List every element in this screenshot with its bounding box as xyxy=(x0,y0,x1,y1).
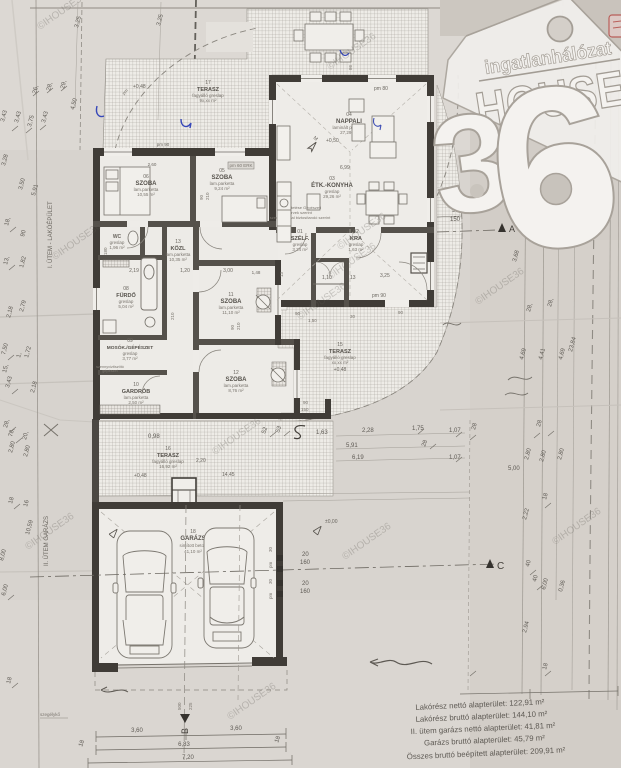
svg-text:90: 90 xyxy=(199,194,204,200)
svg-text:30: 30 xyxy=(268,546,273,552)
svg-text:150: 150 xyxy=(301,407,309,412)
svg-text:30: 30 xyxy=(350,314,356,319)
svg-text:GARÁZS: GARÁZS xyxy=(180,535,205,542)
svg-text:09: 09 xyxy=(127,338,133,344)
svg-text:pm 90: pm 90 xyxy=(157,142,170,147)
svg-text:C: C xyxy=(497,561,504,572)
svg-text:KÖZL: KÖZL xyxy=(171,245,187,252)
svg-text:FÜRDŐ: FÜRDŐ xyxy=(116,292,136,299)
svg-text:210: 210 xyxy=(205,192,210,200)
svg-text:160: 160 xyxy=(300,560,311,566)
svg-text:29,26 m²: 29,26 m² xyxy=(323,194,341,199)
svg-text:2,60: 2,60 xyxy=(148,162,157,167)
svg-text:GARDRÓB: GARDRÓB xyxy=(122,387,150,395)
svg-text:xx,xx m²: xx,xx m² xyxy=(332,360,349,365)
svg-text:szegélykő: szegélykő xyxy=(40,712,61,717)
svg-text:2,20: 2,20 xyxy=(196,458,206,464)
svg-text:12: 12 xyxy=(233,370,239,376)
svg-text:6,83: 6,83 xyxy=(178,742,190,748)
svg-text:6,99: 6,99 xyxy=(340,165,350,171)
svg-text:B: B xyxy=(180,728,190,734)
svg-text:08: 08 xyxy=(123,286,129,292)
svg-text:1,63: 1,63 xyxy=(316,430,328,436)
svg-text:14,45: 14,45 xyxy=(222,472,235,478)
svg-text:1,20: 1,20 xyxy=(180,268,190,274)
svg-text:06: 06 xyxy=(143,174,149,180)
svg-text:20: 20 xyxy=(302,581,309,587)
svg-text:9x,xx m²: 9x,xx m² xyxy=(199,98,217,103)
svg-text:3,00: 3,00 xyxy=(223,268,233,274)
svg-text:+0,50: +0,50 xyxy=(326,138,339,144)
svg-text:5,91: 5,91 xyxy=(346,443,358,449)
svg-text:2,19: 2,19 xyxy=(129,268,139,274)
svg-text:gépészet: gépészet xyxy=(102,369,118,373)
svg-text:160: 160 xyxy=(300,589,311,595)
svg-text:+0,48: +0,48 xyxy=(134,473,147,479)
svg-text:8,76 m²: 8,76 m² xyxy=(228,388,244,393)
svg-text:01: 01 xyxy=(297,229,303,235)
svg-text:1,48: 1,48 xyxy=(252,270,261,275)
svg-text:30: 30 xyxy=(268,578,273,584)
svg-text:05: 05 xyxy=(219,168,225,174)
svg-text:0,98: 0,98 xyxy=(148,434,160,440)
svg-text:11,10 m²: 11,10 m² xyxy=(222,310,240,315)
svg-text:500: 500 xyxy=(177,702,182,710)
svg-text:3,25: 3,25 xyxy=(380,273,390,279)
svg-text:41,10 m²: 41,10 m² xyxy=(184,549,202,554)
svg-text:pm: pm xyxy=(268,592,273,599)
svg-text:10: 10 xyxy=(133,382,139,388)
svg-text:6,19: 6,19 xyxy=(352,455,364,461)
svg-text:225: 225 xyxy=(188,702,193,710)
svg-text:210: 210 xyxy=(170,312,175,320)
svg-text:1,50: 1,50 xyxy=(308,318,317,323)
svg-text:simított beton: simított beton xyxy=(179,543,207,548)
svg-text:13: 13 xyxy=(175,239,181,245)
svg-text:3,60: 3,60 xyxy=(131,728,143,734)
svg-text:90: 90 xyxy=(303,400,309,405)
svg-text:18: 18 xyxy=(190,529,196,535)
svg-text:3,60: 3,60 xyxy=(230,726,242,732)
svg-text:13: 13 xyxy=(279,271,284,277)
svg-text:04: 04 xyxy=(346,112,352,118)
svg-text:180: 180 xyxy=(103,247,108,255)
svg-text:SZÉLF.: SZÉLF. xyxy=(291,234,310,242)
svg-text:±0,00: ±0,00 xyxy=(325,519,338,525)
svg-text:7,20: 7,20 xyxy=(182,755,194,761)
svg-text:5,04 m²: 5,04 m² xyxy=(118,304,134,309)
svg-text:pm 90: pm 90 xyxy=(372,293,386,299)
svg-text:11: 11 xyxy=(228,292,233,298)
svg-text:pm: pm xyxy=(268,561,273,568)
svg-text:pm 60 ERK: pm 60 ERK xyxy=(229,163,252,168)
svg-text:03: 03 xyxy=(329,176,335,182)
svg-text:15: 15 xyxy=(337,342,343,348)
svg-text:3,77 m²: 3,77 m² xyxy=(122,356,138,361)
svg-text:2,28: 2,28 xyxy=(362,428,374,434)
svg-text:90: 90 xyxy=(230,324,235,330)
svg-text:2,50 m²: 2,50 m² xyxy=(128,400,144,405)
svg-text:ÉTK.-KONYHA: ÉTK.-KONYHA xyxy=(311,181,353,189)
svg-text:+0,48: +0,48 xyxy=(334,367,347,373)
svg-text:pm 80: pm 80 xyxy=(374,86,388,92)
svg-text:5,00: 5,00 xyxy=(508,466,520,472)
svg-text:17: 17 xyxy=(205,80,211,86)
svg-text:10,55 m²: 10,55 m² xyxy=(137,192,155,197)
svg-text:10,35 m²: 10,35 m² xyxy=(169,257,187,262)
svg-text:90: 90 xyxy=(398,310,404,315)
svg-text:16,92 m²: 16,92 m² xyxy=(159,464,177,469)
svg-text:13: 13 xyxy=(350,275,356,281)
svg-text:20: 20 xyxy=(302,552,309,558)
svg-text:1,75: 1,75 xyxy=(412,426,424,432)
svg-text:9,24 m²: 9,24 m² xyxy=(214,186,230,191)
svg-text:1,96 m²: 1,96 m² xyxy=(109,245,125,250)
svg-text:86: 86 xyxy=(348,64,353,70)
svg-text:16: 16 xyxy=(165,446,171,452)
svg-text:210: 210 xyxy=(236,322,241,330)
svg-text:+0,48: +0,48 xyxy=(133,84,146,90)
